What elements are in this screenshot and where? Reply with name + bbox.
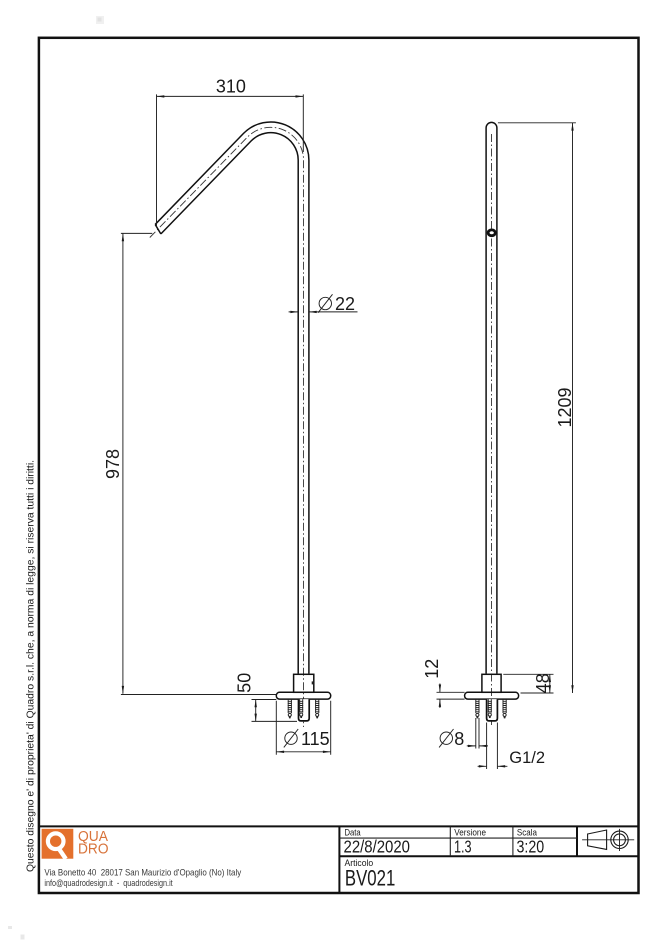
svg-text:115: 115	[301, 729, 330, 749]
svg-text:12: 12	[422, 659, 442, 679]
svg-text:50: 50	[235, 673, 255, 693]
svg-text:info@quadrodesign.it - quadr: info@quadrodesign.it - quadrodesign.it	[44, 878, 173, 888]
svg-text:1.3: 1.3	[454, 837, 472, 857]
svg-text:1209: 1209	[555, 387, 575, 427]
svg-text:BV021: BV021	[345, 866, 395, 891]
svg-text:G1/2: G1/2	[509, 749, 545, 767]
svg-text:48: 48	[533, 673, 553, 693]
svg-text:8: 8	[454, 729, 464, 749]
svg-text:978: 978	[103, 449, 123, 479]
svg-text:DRO: DRO	[78, 841, 109, 857]
svg-text:Via Bonetto 40 28017 San Maur: Via Bonetto 40 28017 San Maurizio d'Opag…	[44, 867, 241, 877]
svg-text:310: 310	[216, 76, 246, 96]
svg-text:22: 22	[335, 294, 355, 314]
svg-text:3:20: 3:20	[517, 837, 545, 857]
svg-text:22/8/2020: 22/8/2020	[344, 837, 411, 857]
svg-text:Questo disegno e' di proprieta: Questo disegno e' di proprieta' di Quadr…	[26, 460, 37, 872]
